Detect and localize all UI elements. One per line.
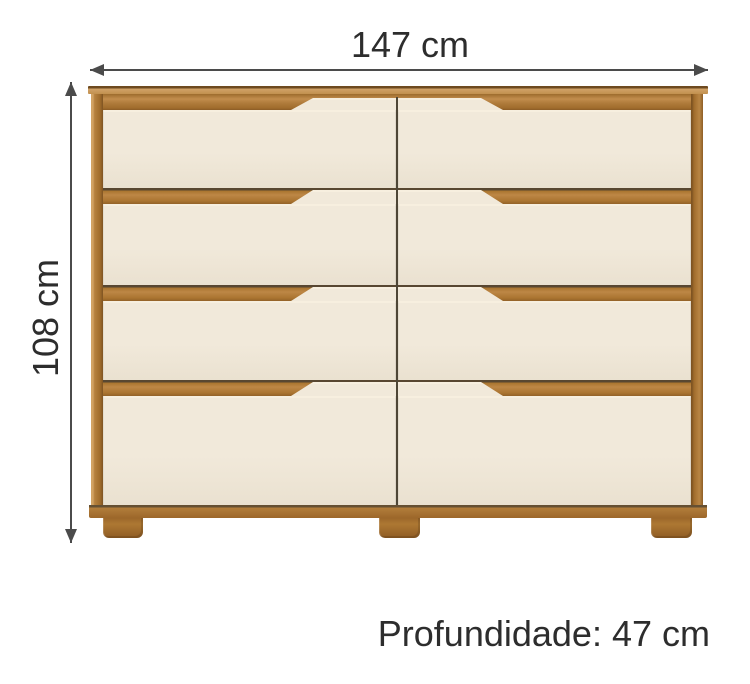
drawer-front-right xyxy=(398,301,691,380)
drawer-front-left xyxy=(103,110,396,188)
height-dimension-line xyxy=(70,82,72,543)
height-dimension-label: 108 cm xyxy=(28,259,64,377)
dresser-top-panel xyxy=(88,86,708,94)
width-dimension-label: 147 cm xyxy=(300,27,520,63)
dresser-side-frame-right xyxy=(691,94,703,505)
dimension-diagram: 147 cm 108 cm Profundidade: 47 cm xyxy=(0,0,750,684)
arrowhead-right-icon xyxy=(694,64,708,76)
drawer-front-left xyxy=(103,396,396,505)
width-dimension-line xyxy=(90,69,708,71)
arrowhead-left-icon xyxy=(90,64,104,76)
drawer-front-left xyxy=(103,204,396,285)
depth-dimension-label: Profundidade: 47 cm xyxy=(378,616,710,652)
dresser-foot xyxy=(379,518,420,538)
dresser-foot xyxy=(103,518,143,538)
dresser-side-frame-left xyxy=(91,94,103,505)
center-divider-line xyxy=(396,97,398,505)
arrowhead-up-icon xyxy=(65,82,77,96)
dresser-base-rail xyxy=(89,505,707,518)
drawer-front-left xyxy=(103,301,396,380)
arrowhead-down-icon xyxy=(65,529,77,543)
dresser-foot xyxy=(651,518,692,538)
drawer-front-right xyxy=(398,396,691,505)
drawer-front-right xyxy=(398,110,691,188)
drawer-front-right xyxy=(398,204,691,285)
